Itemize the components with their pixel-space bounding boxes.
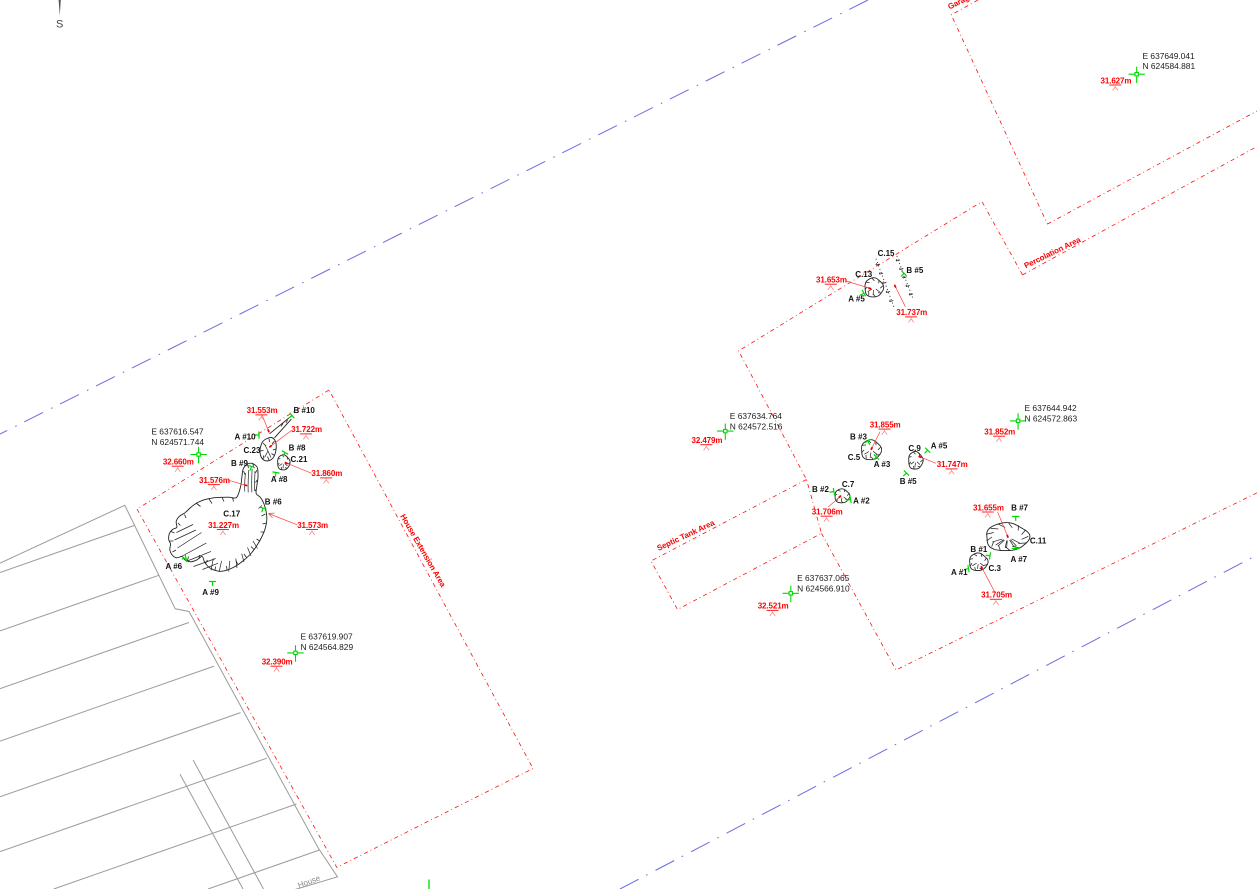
svg-text:C.15: C.15 — [878, 249, 895, 258]
svg-text:E 637634.764: E 637634.764 — [730, 411, 783, 421]
svg-text:E 637644.942: E 637644.942 — [1025, 403, 1078, 413]
svg-text:C.5: C.5 — [848, 453, 861, 462]
svg-text:B #2: B #2 — [812, 485, 829, 494]
svg-text:A #7: A #7 — [1011, 555, 1028, 564]
svg-text:Septic Tank Area: Septic Tank Area — [656, 518, 717, 553]
svg-text:E 637616.547: E 637616.547 — [151, 427, 204, 437]
svg-text:E 637649.041: E 637649.041 — [1143, 51, 1196, 61]
svg-text:C.21: C.21 — [291, 455, 308, 464]
svg-text:E 637619.907: E 637619.907 — [301, 632, 354, 642]
svg-text:A #1: A #1 — [951, 568, 968, 577]
svg-text:N 624584.881: N 624584.881 — [1143, 61, 1196, 71]
svg-text:31.747m: 31.747m — [937, 460, 968, 469]
svg-text:A #5: A #5 — [931, 442, 948, 451]
svg-text:31.722m: 31.722m — [291, 425, 322, 434]
svg-text:House Extension Area: House Extension Area — [398, 513, 447, 590]
svg-text:B #7: B #7 — [1011, 504, 1028, 513]
svg-text:31.553m: 31.553m — [247, 406, 278, 415]
svg-text:32.479m: 32.479m — [692, 436, 723, 445]
svg-text:31.705m: 31.705m — [981, 591, 1012, 600]
svg-text:B #3: B #3 — [850, 432, 867, 441]
svg-text:31.737m: 31.737m — [896, 308, 927, 317]
svg-text:B #6: B #6 — [265, 498, 282, 507]
svg-text:A #2: A #2 — [853, 497, 870, 506]
svg-text:31.855m: 31.855m — [870, 420, 901, 429]
svg-text:S: S — [56, 19, 63, 31]
svg-text:Garage Area: Garage Area — [946, 0, 992, 11]
svg-text:C.7: C.7 — [842, 480, 855, 489]
svg-text:31.655m: 31.655m — [973, 503, 1004, 512]
svg-text:31.860m: 31.860m — [311, 469, 342, 478]
svg-text:C.9: C.9 — [908, 444, 921, 453]
svg-text:B #5: B #5 — [900, 477, 917, 486]
svg-text:Percolation Area: Percolation Area — [1023, 235, 1083, 270]
svg-text:N 624572.516: N 624572.516 — [730, 421, 783, 431]
svg-text:32.390m: 32.390m — [262, 658, 293, 667]
svg-text:B #5: B #5 — [906, 266, 923, 275]
svg-text:31.227m: 31.227m — [208, 521, 239, 530]
svg-text:C.3: C.3 — [989, 564, 1002, 573]
svg-text:C.13: C.13 — [855, 270, 872, 279]
svg-text:B #8: B #8 — [289, 444, 306, 453]
svg-text:N 624571.744: N 624571.744 — [151, 437, 204, 447]
svg-text:House: House — [297, 873, 322, 889]
svg-text:31.706m: 31.706m — [812, 508, 843, 517]
svg-text:32.521m: 32.521m — [758, 602, 789, 611]
svg-text:A #10: A #10 — [235, 433, 257, 442]
svg-text:C.23: C.23 — [244, 446, 261, 455]
svg-text:B #9: B #9 — [231, 459, 248, 468]
svg-text:B #10: B #10 — [294, 406, 316, 415]
svg-text:31.852m: 31.852m — [984, 428, 1015, 437]
svg-text:N 624572.863: N 624572.863 — [1025, 413, 1078, 423]
svg-text:31.653m: 31.653m — [816, 276, 847, 285]
svg-text:31.576m: 31.576m — [199, 476, 230, 485]
svg-text:31.573m: 31.573m — [297, 521, 328, 530]
svg-text:A #6: A #6 — [166, 562, 183, 571]
svg-text:B #1: B #1 — [970, 545, 987, 554]
svg-text:A #8: A #8 — [271, 475, 288, 484]
svg-text:A #3: A #3 — [874, 460, 891, 469]
svg-text:C.17: C.17 — [223, 510, 240, 519]
svg-text:31.627m: 31.627m — [1101, 76, 1132, 85]
svg-text:C.11: C.11 — [1030, 537, 1047, 546]
svg-text:N 624564.829: N 624564.829 — [301, 642, 354, 652]
svg-text:32.660m: 32.660m — [163, 458, 194, 467]
svg-text:A #9: A #9 — [202, 588, 219, 597]
svg-text:N 624566.910: N 624566.910 — [797, 583, 850, 593]
svg-text:A #5: A #5 — [848, 294, 865, 303]
svg-text:E 637637.065: E 637637.065 — [797, 573, 850, 583]
